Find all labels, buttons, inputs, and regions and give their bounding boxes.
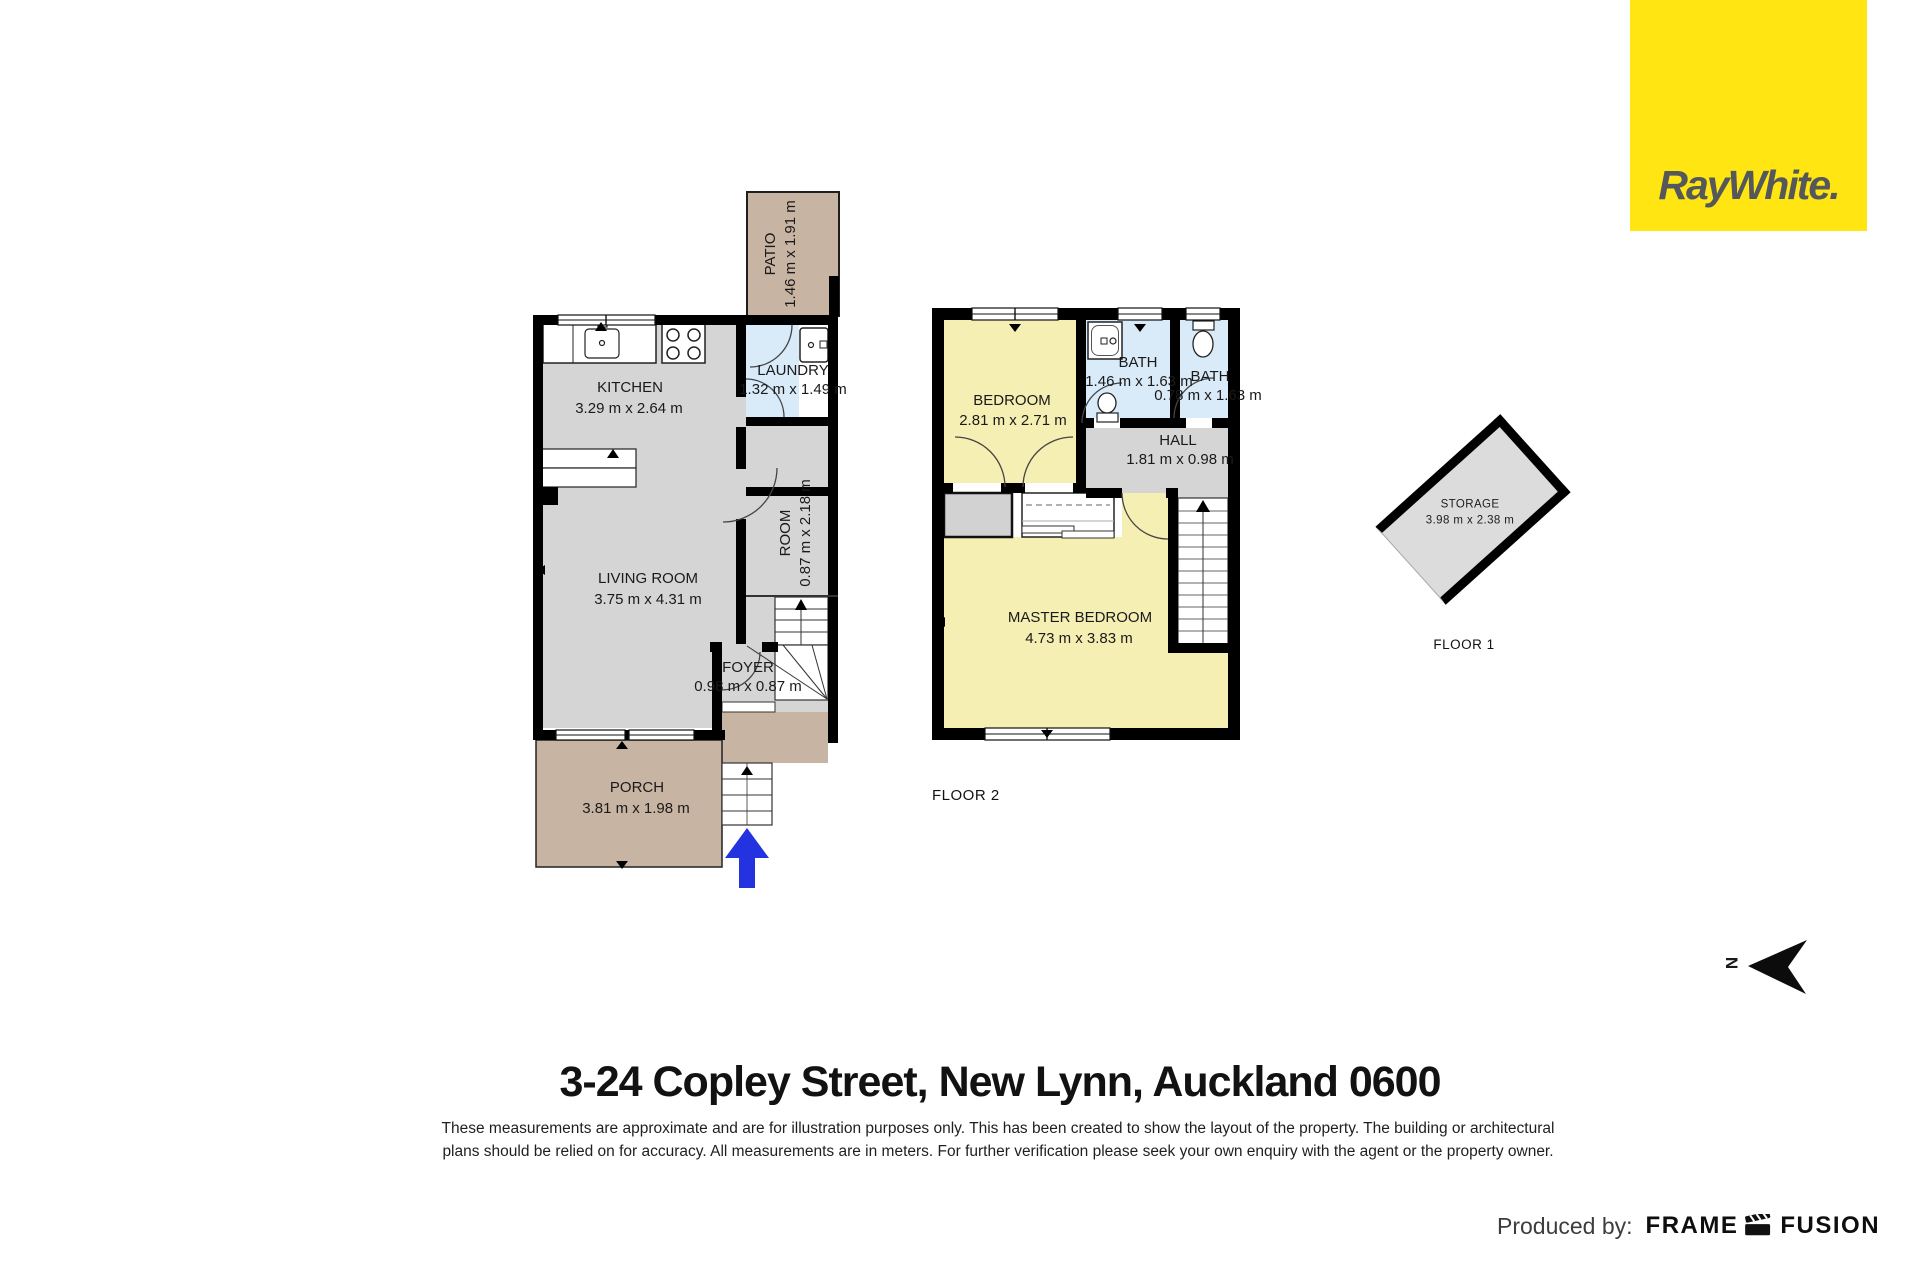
frame-fusion-logo: FRAME FUSION: [1646, 1212, 1881, 1240]
room-dims-living: 3.75 m x 4.31 m: [594, 591, 702, 608]
room-label-hall: HALL: [1159, 432, 1197, 449]
room-label-laundry: LAUNDRY: [757, 362, 828, 379]
north-compass: N: [1690, 930, 1820, 1005]
toilet-bath2: [1193, 321, 1214, 357]
frame-fusion-word1: FRAME: [1646, 1212, 1739, 1240]
room-label-bath1: BATH: [1119, 354, 1158, 371]
produced-by-label: Produced by:: [1497, 1213, 1633, 1240]
entry-steps: [722, 763, 772, 825]
room-label-kitchen: KITCHEN: [597, 379, 663, 396]
room-label-storage: STORAGE: [1441, 496, 1500, 512]
room-label-porch: PORCH: [610, 779, 664, 796]
stairs-floor2: [1178, 498, 1228, 645]
room-dims-hall: 1.81 m x 0.98 m: [1126, 451, 1234, 468]
storage-plan: STORAGE 3.98 m x 2.38 m: [1375, 414, 1570, 604]
room-label-master: MASTER BEDROOM: [1008, 609, 1152, 626]
north-arrow-icon: [1748, 940, 1807, 994]
floor-plan-2: BEDROOM 2.81 m x 2.71 m BATH 1.46 m x 1.…: [920, 300, 1280, 812]
produced-by: Produced by: FRAME FUSION: [1497, 1212, 1880, 1240]
address-title-wrap: 3-24 Copley Street, New Lynn, Auckland 0…: [80, 1058, 1920, 1107]
north-label: N: [1722, 957, 1741, 969]
wardrobes: [944, 493, 1114, 538]
entry-landing: [722, 712, 828, 763]
foyer-slider: [722, 702, 775, 712]
room-dims-bedroom: 2.81 m x 2.71 m: [959, 412, 1067, 429]
room-dims-laundry: 1.32 m x 1.49 m: [739, 381, 847, 398]
room-dims-kitchen: 3.29 m x 2.64 m: [575, 400, 683, 417]
address-title: 3-24 Copley Street, New Lynn, Auckland 0…: [559, 1058, 1440, 1106]
floor1-caption: FLOOR 1: [1404, 637, 1524, 652]
kitchen-island: [542, 449, 636, 487]
disclaimer-line-2: plans should be relied on for accuracy. …: [76, 1141, 1920, 1164]
room-label-living: LIVING ROOM: [598, 570, 698, 587]
room-label-patio: PATIO: [762, 233, 779, 276]
room-label-room: ROOM: [777, 510, 794, 557]
raywhite-logo-text: RayWhite.: [1630, 162, 1867, 209]
room-label-bath2: BATH: [1191, 368, 1230, 385]
room-label-foyer: FOYER: [722, 659, 774, 676]
room-dims-porch: 3.81 m x 1.98 m: [582, 800, 690, 817]
room-dims-storage: 3.98 m x 2.38 m: [1426, 512, 1514, 528]
room-dims-patio: 1.46 m x 1.91 m: [782, 200, 799, 308]
room-dims-foyer: 0.98 m x 0.87 m: [694, 678, 802, 695]
frame-fusion-word2: FUSION: [1780, 1212, 1880, 1240]
entry-direction-arrow: [725, 828, 769, 888]
toilet-bath1: [1097, 393, 1118, 422]
room-dims-bath2: 0.78 m x 1.63 m: [1154, 387, 1262, 404]
clapperboard-icon: [1745, 1214, 1773, 1238]
disclaimer-line-1: These measurements are approximate and a…: [76, 1118, 1920, 1141]
shower: [1088, 322, 1122, 359]
room-dims-master: 4.73 m x 3.83 m: [1025, 630, 1133, 647]
raywhite-logo: RayWhite.: [1630, 0, 1867, 231]
room-dims-room: 0.87 m x 2.18 m: [797, 479, 814, 587]
floor2-caption: FLOOR 2: [932, 787, 1000, 804]
disclaimer: These measurements are approximate and a…: [76, 1118, 1920, 1163]
floor-plan-1: PATIO 1.46 m x 1.91 m KITCHEN 3.29 m x 2…: [520, 185, 860, 895]
kitchen-stove: [662, 323, 705, 363]
room-label-bedroom: BEDROOM: [973, 392, 1051, 409]
laundry-sink: [800, 328, 828, 362]
